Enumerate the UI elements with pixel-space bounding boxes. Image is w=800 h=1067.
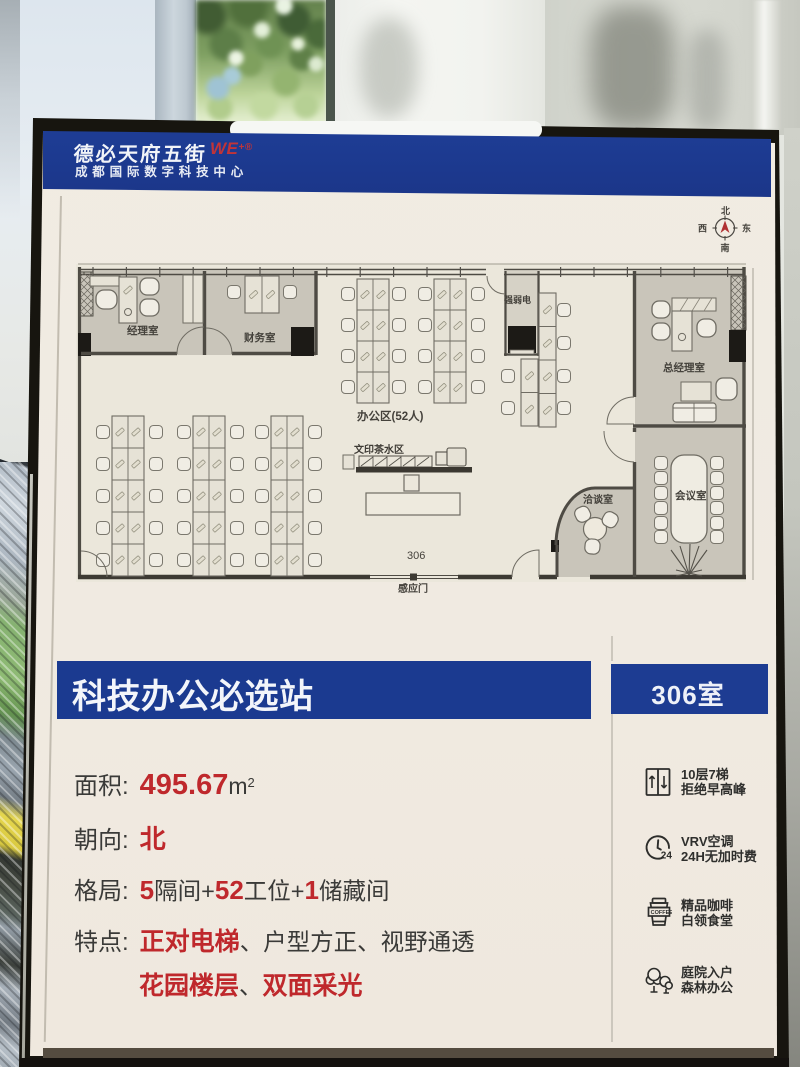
svg-text:306: 306 (407, 550, 425, 562)
svg-text:强弱电: 强弱电 (504, 294, 531, 305)
svg-text:24: 24 (661, 851, 672, 861)
svg-text:总经理室: 总经理室 (663, 361, 705, 374)
svg-text:财务室: 财务室 (243, 331, 276, 344)
svg-text:COFFEE: COFFEE (651, 910, 672, 916)
svg-text:文印茶水区: 文印茶水区 (354, 443, 404, 456)
svg-text:经理室: 经理室 (127, 324, 159, 337)
svg-text:会议室: 会议室 (675, 489, 707, 502)
svg-text:感应门: 感应门 (398, 582, 428, 595)
svg-text:办公区(52人): 办公区(52人) (357, 409, 424, 423)
svg-text:洽谈室: 洽谈室 (583, 493, 613, 506)
